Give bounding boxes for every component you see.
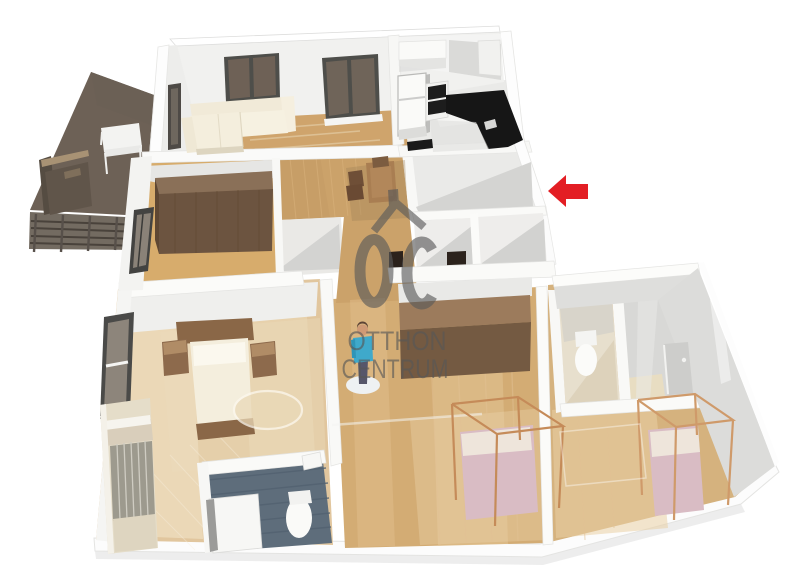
svg-text:OTTHON: OTTHON [348,326,447,356]
svg-text:CENTRUM: CENTRUM [342,354,449,384]
